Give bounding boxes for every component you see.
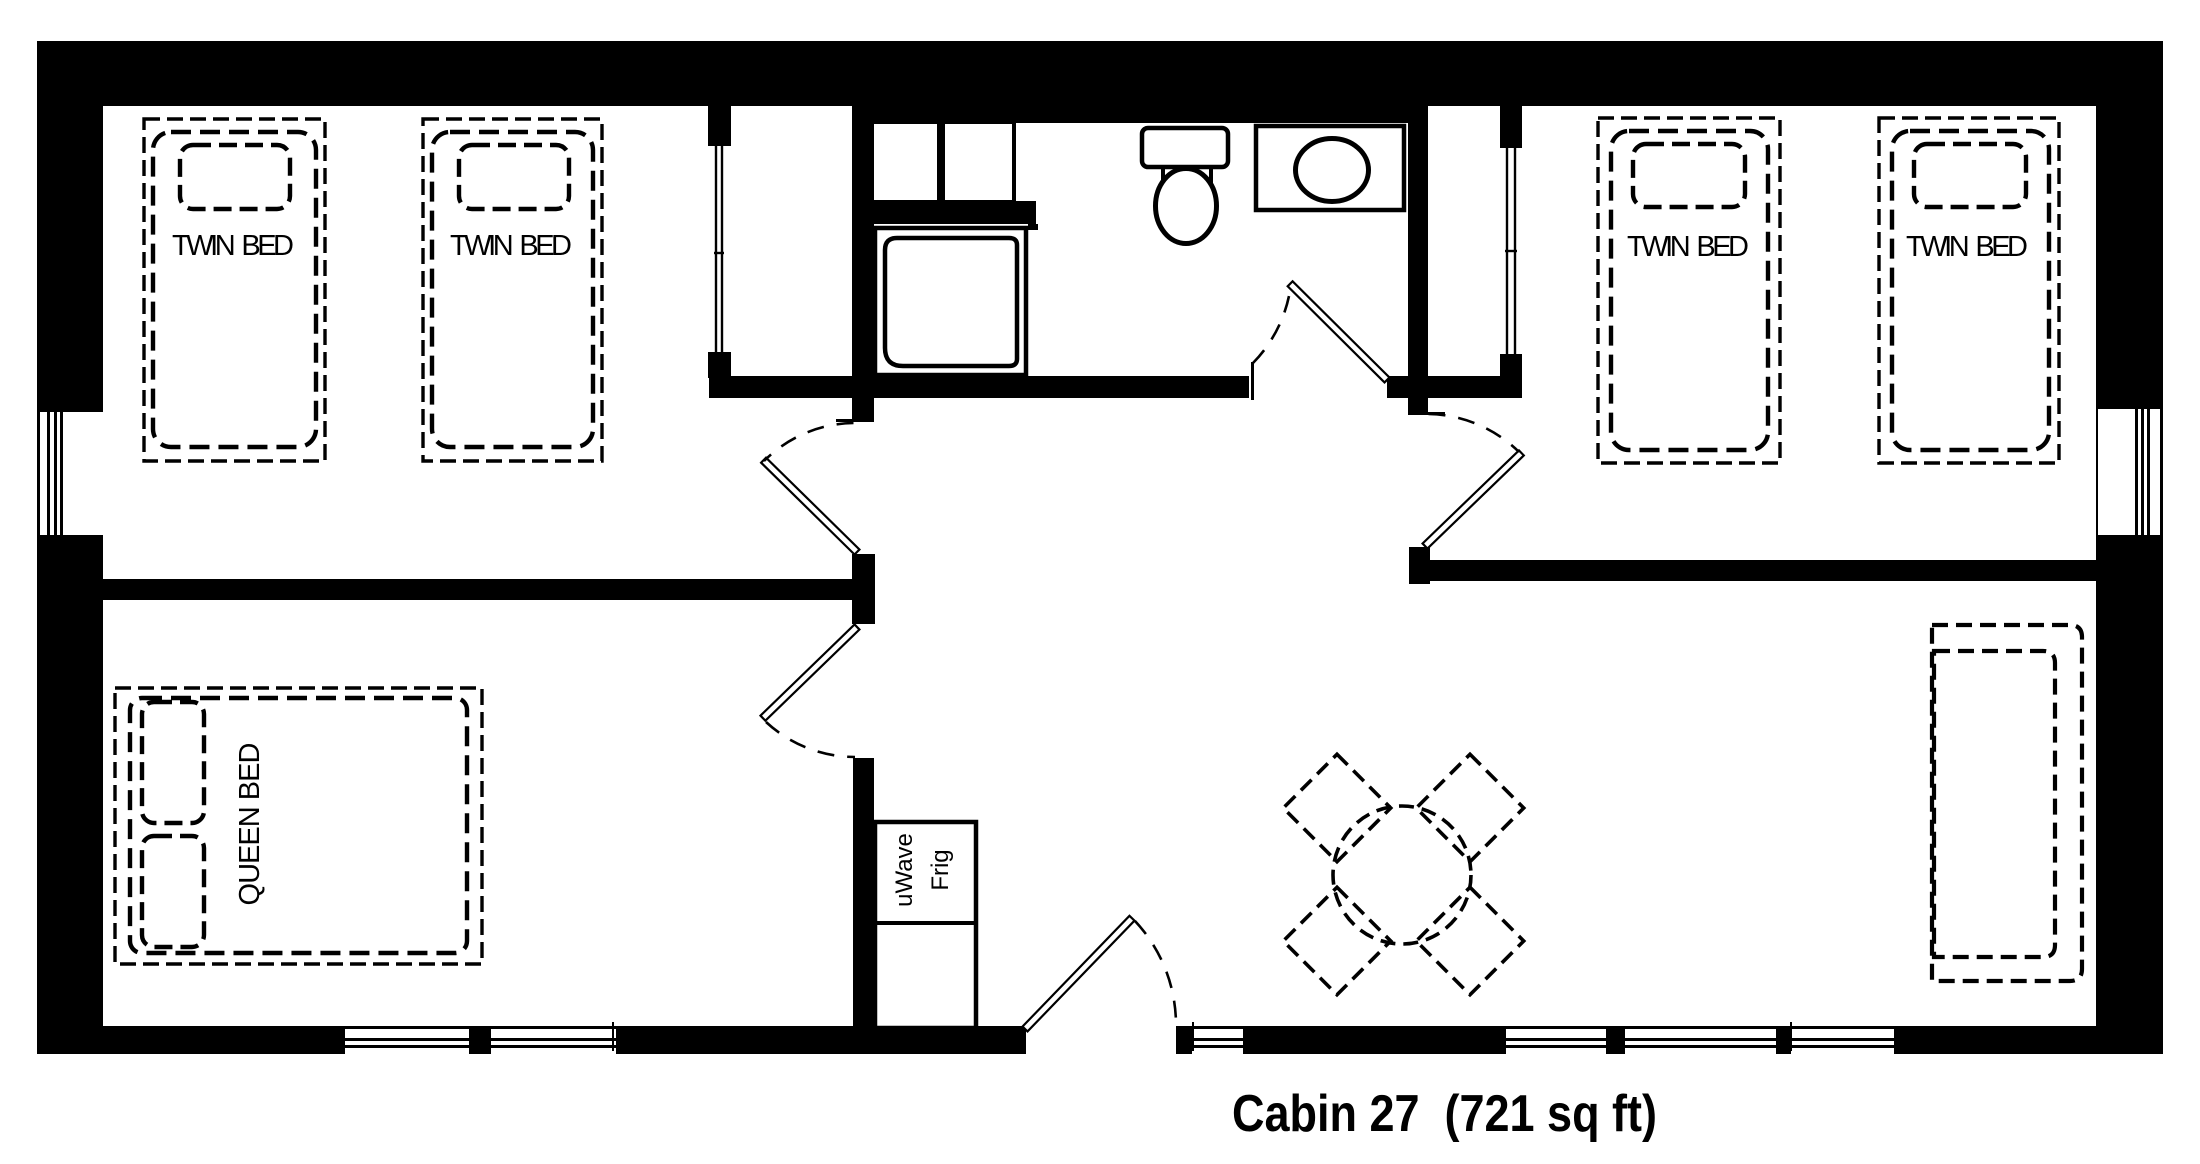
svg-text:TWIN BED: TWIN BED bbox=[1627, 231, 1749, 263]
svg-text:TWIN BED: TWIN BED bbox=[172, 230, 294, 262]
svg-text:Frig: Frig bbox=[927, 849, 954, 890]
svg-text:TWIN BED: TWIN BED bbox=[1906, 231, 2028, 263]
svg-text:uWave: uWave bbox=[891, 833, 918, 907]
svg-text:Cabin 27 (721 sq ft): Cabin 27 (721 sq ft) bbox=[1232, 1085, 1657, 1143]
svg-text:TWIN BED: TWIN BED bbox=[450, 230, 572, 262]
svg-text:QUEEN BED: QUEEN BED bbox=[234, 743, 266, 906]
